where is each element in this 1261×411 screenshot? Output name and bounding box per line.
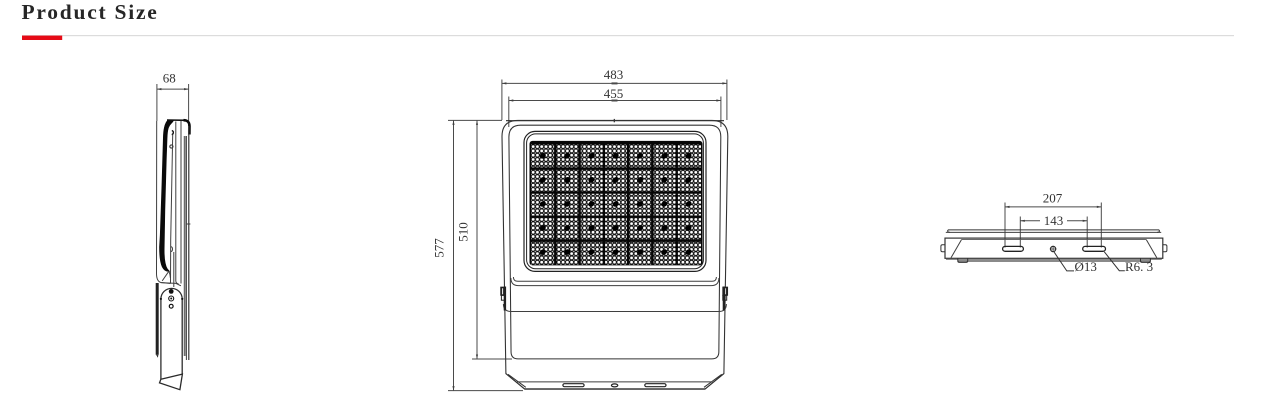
svg-text:68: 68: [163, 71, 176, 86]
svg-text:510: 510: [456, 222, 471, 242]
svg-text:Ø13: Ø13: [1075, 259, 1097, 274]
svg-text:577: 577: [432, 238, 447, 258]
svg-text:207: 207: [1043, 191, 1063, 206]
svg-text:483: 483: [604, 67, 624, 82]
svg-text:143: 143: [1044, 213, 1064, 228]
svg-text:455: 455: [604, 86, 624, 101]
svg-text:Product Size: Product Size: [22, 0, 159, 24]
svg-text:R6. 3: R6. 3: [1125, 259, 1153, 274]
